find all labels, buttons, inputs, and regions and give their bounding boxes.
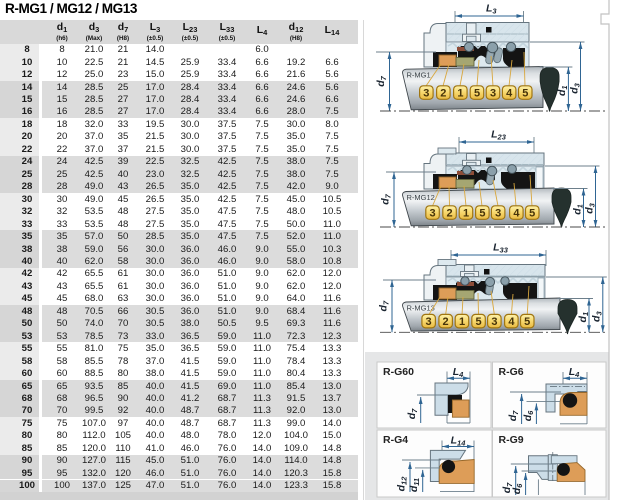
svg-text:3: 3 [423, 87, 429, 99]
svg-text:R-MG12: R-MG12 [407, 193, 435, 202]
svg-text:L3: L3 [486, 3, 497, 16]
svg-text:2: 2 [443, 316, 449, 328]
svg-text:4: 4 [508, 316, 515, 328]
svg-text:4: 4 [513, 207, 520, 219]
svg-text:R-MG1: R-MG1 [407, 71, 431, 80]
svg-text:3: 3 [490, 87, 496, 99]
svg-text:d7: d7 [378, 300, 391, 311]
svg-text:5: 5 [529, 207, 535, 219]
svg-text:3: 3 [495, 207, 501, 219]
svg-text:d3: d3 [568, 82, 581, 93]
svg-text:2: 2 [440, 87, 446, 99]
svg-text:d7: d7 [380, 193, 393, 204]
svg-text:3: 3 [491, 316, 497, 328]
svg-text:d1: d1 [577, 312, 590, 323]
svg-text:5: 5 [522, 87, 528, 99]
svg-text:3: 3 [426, 316, 432, 328]
svg-text:1: 1 [463, 207, 469, 219]
svg-text:d7: d7 [375, 75, 388, 86]
svg-text:4: 4 [506, 87, 513, 99]
svg-text:L23: L23 [491, 129, 507, 142]
svg-text:5: 5 [475, 316, 481, 328]
svg-text:R-G6: R-G6 [499, 366, 524, 378]
svg-text:R-G9: R-G9 [499, 434, 524, 446]
svg-text:2: 2 [446, 207, 452, 219]
svg-text:d3: d3 [583, 202, 596, 213]
svg-text:3: 3 [429, 207, 435, 219]
svg-text:d3: d3 [591, 311, 604, 322]
svg-text:5: 5 [474, 87, 480, 99]
svg-text:1: 1 [457, 87, 463, 99]
svg-text:R-G60: R-G60 [383, 366, 414, 378]
svg-text:R-G4: R-G4 [383, 434, 408, 446]
svg-text:1: 1 [459, 316, 465, 328]
svg-text:5: 5 [524, 316, 530, 328]
svg-text:5: 5 [479, 207, 485, 219]
svg-text:L33: L33 [493, 242, 509, 255]
